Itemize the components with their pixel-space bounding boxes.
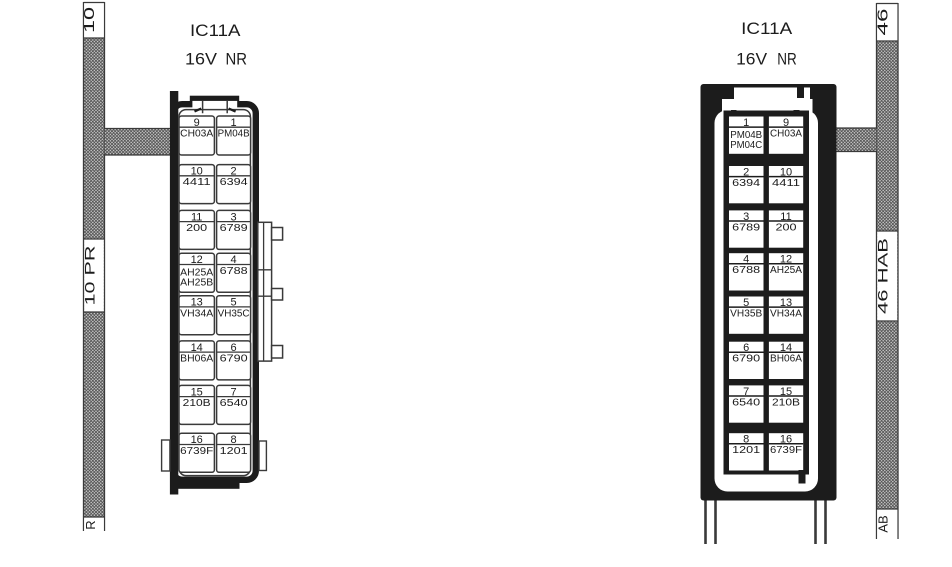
svg-text:7: 7	[231, 386, 237, 398]
svg-text:6789: 6789	[732, 222, 761, 233]
svg-text:11: 11	[191, 211, 202, 223]
svg-text:6788: 6788	[220, 266, 249, 277]
svg-text:AB: AB	[876, 515, 891, 532]
svg-text:1: 1	[743, 117, 749, 129]
svg-text:CH03A: CH03A	[770, 128, 802, 139]
svg-text:CH03A: CH03A	[180, 129, 213, 140]
svg-text:9: 9	[783, 117, 789, 129]
svg-text:13: 13	[191, 297, 203, 309]
svg-text:4411: 4411	[772, 178, 801, 189]
svg-text:10 PR: 10 PR	[83, 245, 98, 305]
svg-text:VH35B: VH35B	[730, 308, 762, 319]
svg-text:6394: 6394	[220, 177, 249, 188]
svg-text:AH25B: AH25B	[180, 277, 213, 288]
svg-text:PM04B: PM04B	[218, 129, 250, 140]
svg-text:200: 200	[186, 223, 208, 234]
svg-text:6: 6	[231, 342, 237, 354]
svg-text:4: 4	[743, 254, 749, 266]
svg-text:NR: NR	[226, 51, 248, 69]
svg-text:15: 15	[780, 386, 792, 398]
svg-text:VH35C: VH35C	[218, 308, 250, 319]
svg-text:5: 5	[231, 297, 237, 309]
svg-text:46: 46	[875, 9, 892, 36]
svg-text:10: 10	[191, 166, 203, 178]
svg-text:6: 6	[743, 342, 749, 354]
svg-text:14: 14	[780, 342, 792, 354]
svg-text:6739F: 6739F	[180, 446, 213, 457]
svg-text:6739F: 6739F	[770, 445, 802, 456]
svg-text:1201: 1201	[220, 446, 249, 457]
svg-text:VH34A: VH34A	[180, 308, 213, 319]
svg-text:10: 10	[780, 167, 792, 179]
svg-text:4411: 4411	[183, 177, 212, 188]
svg-text:46 HAB: 46 HAB	[876, 238, 891, 314]
svg-text:6790: 6790	[732, 354, 761, 365]
svg-text:10: 10	[81, 7, 98, 33]
svg-text:R: R	[83, 520, 98, 529]
svg-text:NR: NR	[777, 51, 797, 69]
svg-text:6540: 6540	[732, 397, 761, 408]
svg-text:1: 1	[231, 117, 237, 129]
svg-text:5: 5	[743, 297, 749, 309]
svg-text:210B: 210B	[183, 398, 211, 409]
svg-text:12: 12	[780, 254, 792, 266]
svg-text:4: 4	[231, 254, 237, 266]
svg-text:16V: 16V	[736, 51, 767, 69]
svg-text:3: 3	[231, 211, 237, 223]
svg-text:11: 11	[780, 211, 791, 223]
svg-text:2: 2	[231, 166, 237, 178]
svg-text:1201: 1201	[732, 445, 761, 456]
svg-text:16V: 16V	[185, 51, 217, 69]
svg-text:15: 15	[191, 386, 203, 398]
svg-text:7: 7	[743, 386, 749, 398]
svg-text:210B: 210B	[772, 397, 800, 408]
svg-text:6540: 6540	[220, 398, 249, 409]
svg-text:6394: 6394	[732, 178, 761, 189]
svg-text:200: 200	[776, 222, 798, 233]
svg-text:IC11A: IC11A	[741, 20, 792, 38]
svg-text:VH34A: VH34A	[770, 308, 802, 319]
svg-text:16: 16	[191, 434, 203, 446]
svg-text:16: 16	[780, 434, 792, 446]
svg-text:3: 3	[743, 211, 749, 223]
svg-text:6789: 6789	[220, 223, 249, 234]
svg-text:8: 8	[743, 434, 749, 446]
svg-text:2: 2	[743, 167, 749, 179]
svg-text:9: 9	[194, 117, 200, 129]
svg-text:IC11A: IC11A	[190, 22, 241, 40]
svg-text:AH25A: AH25A	[770, 265, 802, 276]
svg-text:14: 14	[191, 342, 203, 354]
svg-text:8: 8	[231, 434, 237, 446]
svg-text:BH06A: BH06A	[770, 354, 802, 365]
svg-text:13: 13	[780, 297, 792, 309]
svg-text:12: 12	[191, 254, 203, 266]
svg-text:6790: 6790	[220, 354, 249, 365]
svg-text:6788: 6788	[732, 265, 761, 276]
svg-text:PM04C: PM04C	[730, 140, 762, 151]
svg-text:BH06A: BH06A	[180, 354, 213, 365]
